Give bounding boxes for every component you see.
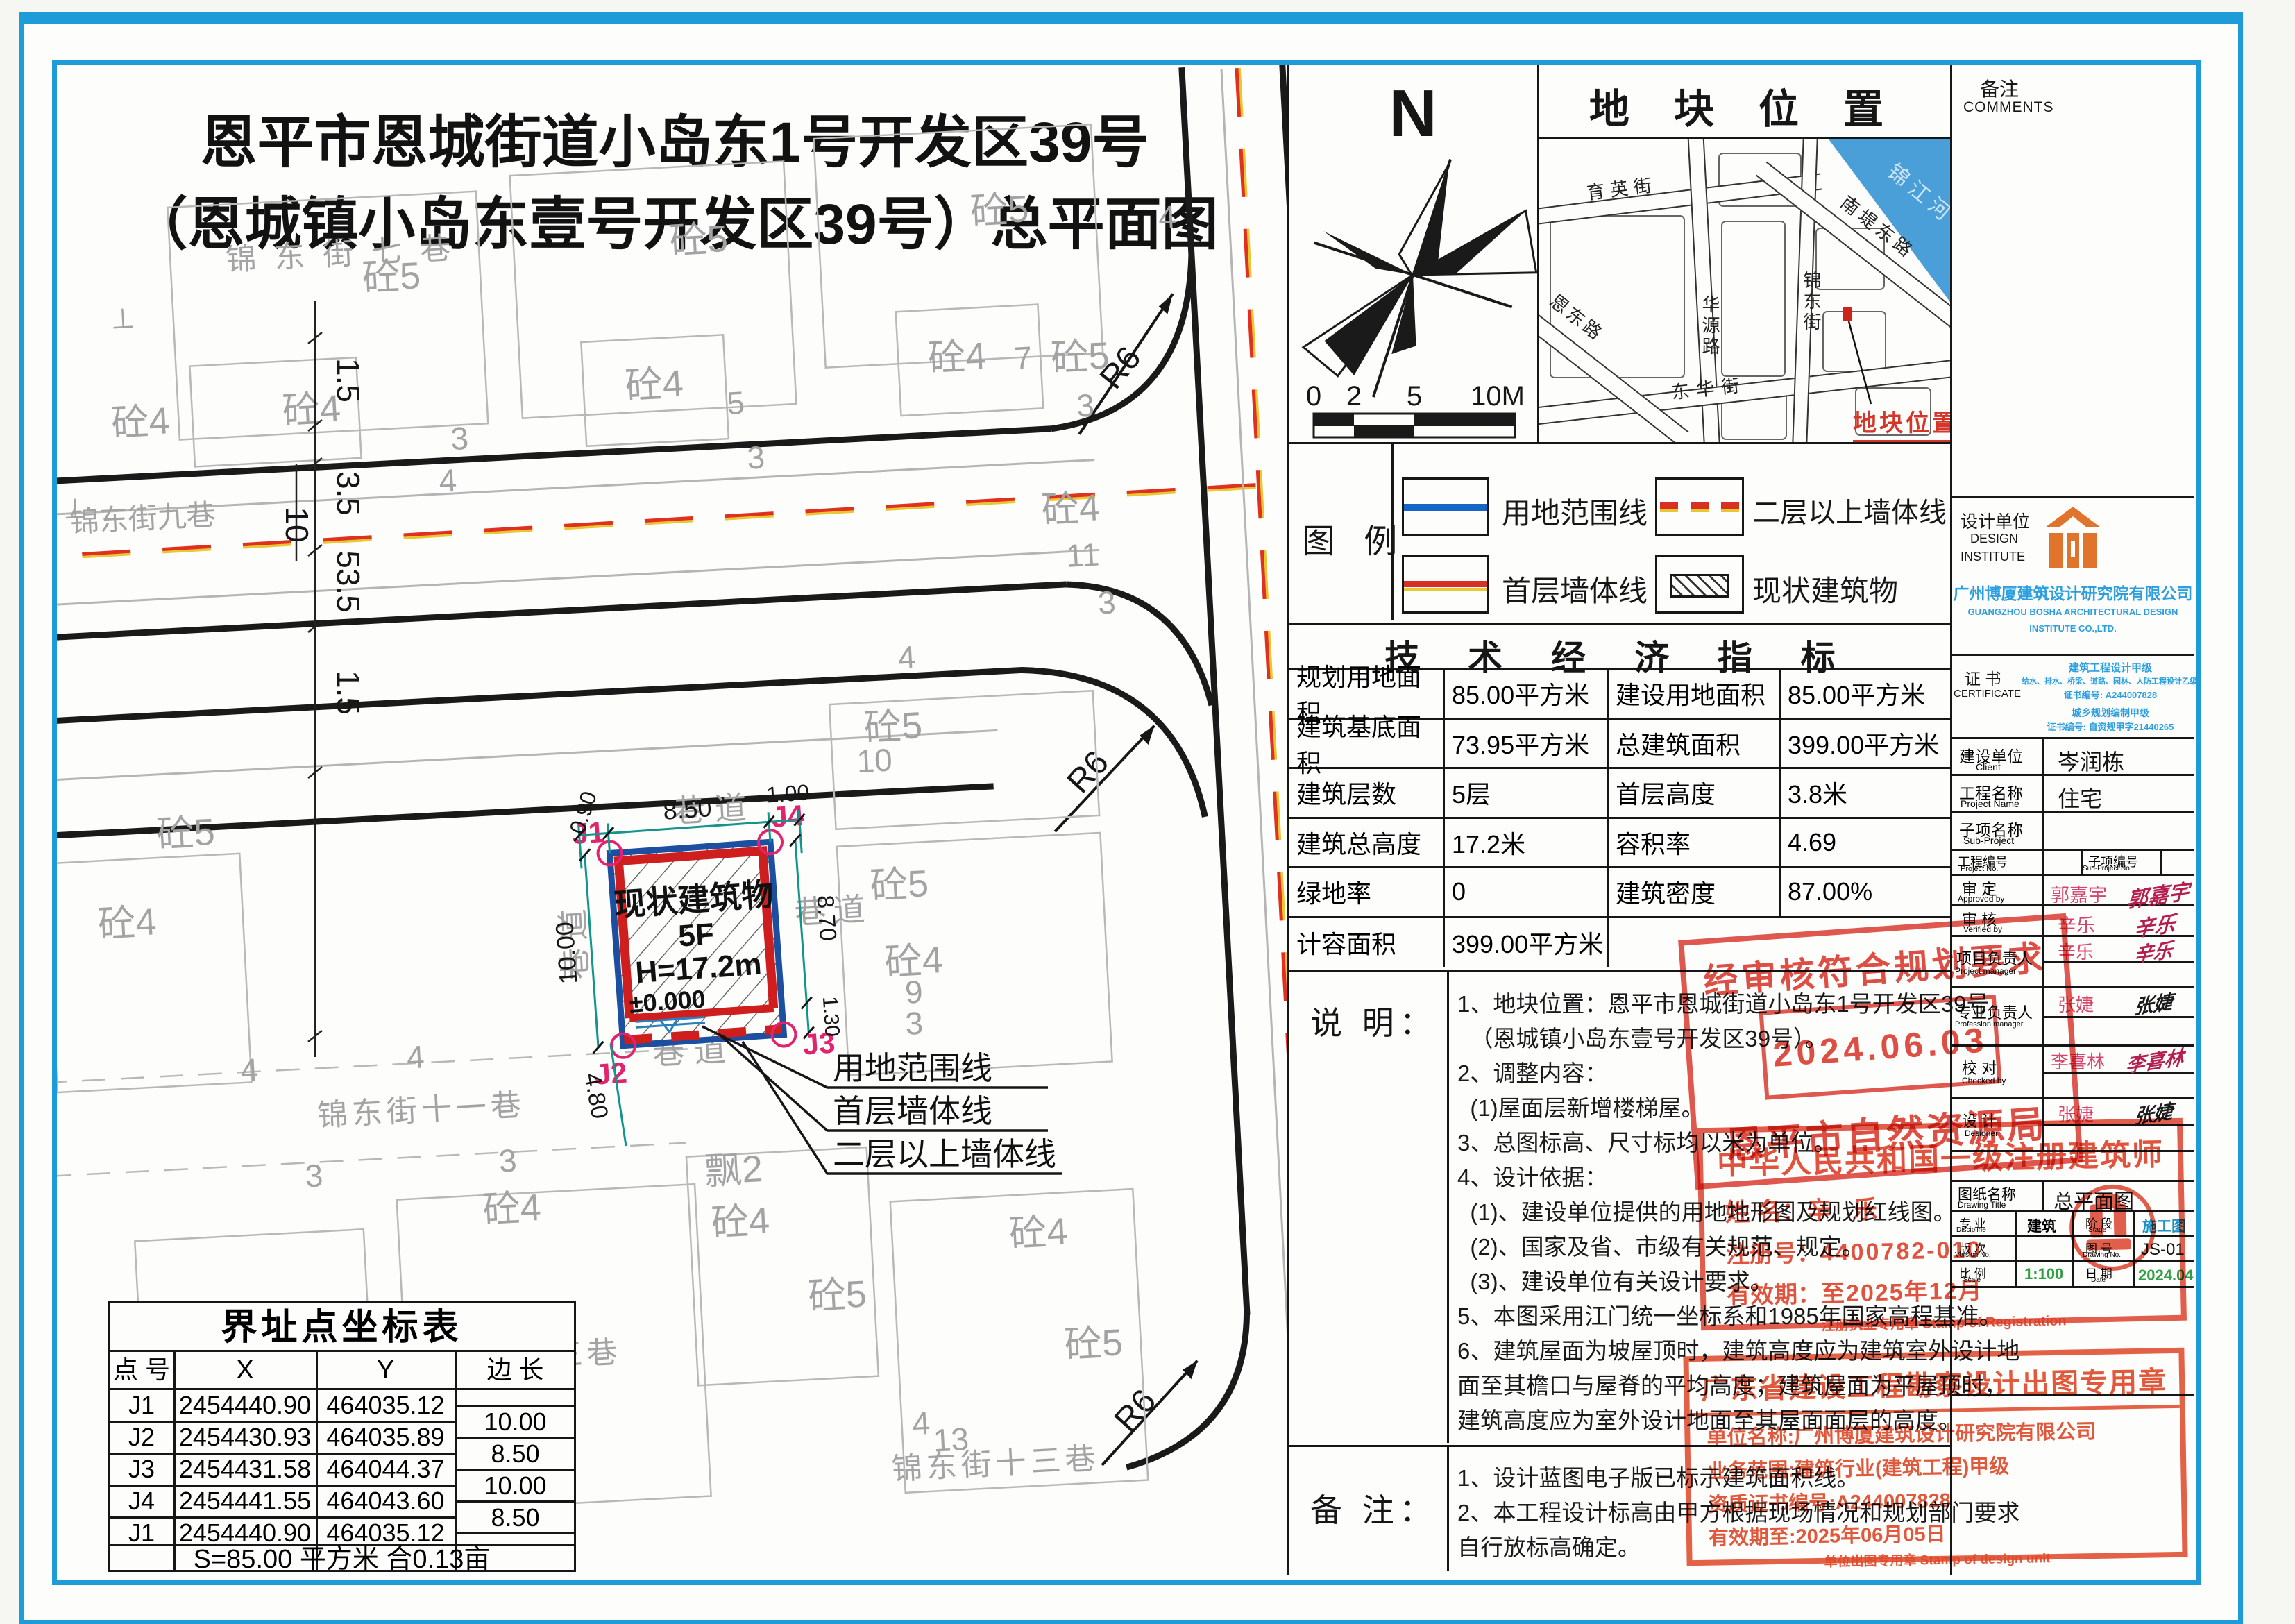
tech-value: 73.95平方米 — [1445, 720, 1609, 770]
architect-valid-label: 有效期： — [1727, 1281, 1822, 1310]
scale-10m: 10M — [1471, 381, 1525, 412]
edge-value: 8.50 — [457, 1503, 574, 1533]
remarks-label: 备 注： — [1310, 1485, 1437, 1531]
road-a-lane-line2 — [57, 550, 1099, 607]
svg-text:R6: R6 — [1108, 1382, 1163, 1439]
svg-text:砼5: 砼5 — [1050, 335, 1110, 379]
legend-title: 图 例 — [1302, 514, 1407, 562]
design-unit-cert-no: 资质证书编号:A244007828 — [1708, 1480, 2182, 1518]
tech-value: 85.00平方米 — [1445, 670, 1609, 720]
compass-map-divider — [1537, 65, 1539, 444]
svg-text:1.5: 1.5 — [330, 358, 366, 403]
tech-value: 5层 — [1445, 769, 1609, 819]
cell: J3 — [110, 1454, 173, 1485]
architect-stamp-title: 中华人民共和国一级注册建筑师 — [1702, 1129, 2178, 1183]
area-summary: S=85.00 平方米 合0.13亩 — [110, 1546, 574, 1573]
legend-section: 图 例 用地范围线 二层以上墙体线 首层墙体线 现状建筑物 — [1287, 444, 1952, 625]
sub-project-en: Sub-Project — [1963, 835, 2014, 846]
client-row: 建设单位 Client 岑润栋 — [1952, 739, 2194, 776]
svg-text:10.00: 10.00 — [550, 921, 582, 986]
r6-label-bottom: R6 — [1097, 1361, 1203, 1465]
tech-value: 4.69 — [1781, 819, 1950, 869]
edge-value: 10.00 — [457, 1471, 574, 1501]
svg-text:⊥: ⊥ — [62, 493, 88, 525]
design-institute-box: 设计单位 DESIGN INSTITUTE 广州博厦建筑设计研究院有限公司 GU… — [1952, 498, 2194, 656]
remarks-divider — [1447, 1447, 1449, 1571]
coordinate-table: 界址点坐标表 点 号 X Y 边 长 J1 2454440.90 464035.… — [108, 1301, 576, 1572]
yellow-dash-icon — [1660, 509, 1739, 512]
architect-stamp-valid-row: 有效期：至2025年12月 — [1727, 1267, 2181, 1311]
project-no-en: Project No. — [1961, 865, 1998, 873]
tech-label: 建筑层数 — [1289, 769, 1445, 819]
scale-0: 0 — [1306, 381, 1321, 412]
legend-label-upperwall: 二层以上墙体线 — [1752, 490, 1947, 530]
tech-label: 总建筑面积 — [1609, 720, 1781, 770]
cell: J1 — [110, 1390, 173, 1421]
tech-label: 建筑总高度 — [1289, 819, 1445, 869]
approved-en: Approved by — [1958, 894, 2004, 904]
legend-swatch-upperwall — [1655, 477, 1744, 536]
sub-no-en: Sub-Project No. — [2083, 865, 2132, 872]
cell: J4 — [110, 1486, 173, 1516]
location-map-title: 地 块 位 置 — [1539, 76, 1950, 135]
cert-line1: 建筑工程设计甲级 — [2027, 660, 2194, 675]
north-letter: N — [1389, 76, 1437, 151]
legend-swatch-boundary — [1402, 477, 1489, 536]
svg-text:10: 10 — [279, 507, 315, 542]
architect-name-label: 姓 名： — [1725, 1196, 1807, 1226]
comments-en: COMMENTS — [1963, 99, 2054, 116]
compass-panel: N 0 2 5 10M — [1289, 67, 1537, 442]
legend-label-firstfloor: 首层墙体线 — [1502, 568, 1648, 610]
col-header-x: X — [176, 1352, 314, 1388]
project-manager-signature: 辛乐 — [2133, 935, 2174, 969]
yellow-line-icon — [1404, 588, 1487, 591]
svg-text:4: 4 — [438, 462, 457, 499]
street-11: 锦东街十一巷 — [316, 1088, 526, 1133]
road-v-lane-line — [1221, 69, 1287, 1493]
svg-text:1.30: 1.30 — [818, 995, 844, 1038]
curve-a-south — [1067, 577, 1212, 712]
svg-text:砼4: 砼4 — [927, 335, 988, 380]
svg-text:1.5: 1.5 — [330, 670, 366, 715]
company-name-en2: INSTITUTE CO.,LTD. — [1952, 623, 2194, 634]
sub-project-row: 子项名称 Sub-Project — [1952, 813, 2194, 851]
architect-registration-stamp: 中华人民共和国一级注册建筑师 姓 名：辛 乐 注册号：4400782-010 有… — [1697, 1118, 2187, 1331]
legend-swatch-existing — [1655, 555, 1744, 614]
hatch-icon — [1670, 574, 1729, 598]
tech-label: 绿地率 — [1289, 868, 1445, 918]
architect-reg-no: 4400782-010 — [1820, 1237, 1982, 1267]
curve-r6-mid — [1022, 661, 1205, 826]
comments-zh: 备注 — [1980, 74, 2019, 102]
svg-text:砼4: 砼4 — [624, 362, 684, 407]
svg-text:4: 4 — [239, 1051, 259, 1088]
street-13b: 锦东街十三巷 — [891, 1441, 1101, 1487]
r6-label-mid: R6 — [1050, 726, 1160, 832]
cert-line5: 证书编号: 自资规甲字21440265 — [2027, 720, 2194, 733]
road-a-north-edge — [57, 429, 1051, 484]
svg-text:13: 13 — [932, 1421, 969, 1459]
scale-2: 2 — [1346, 381, 1362, 412]
svg-text:8.70: 8.70 — [812, 895, 842, 942]
svg-text:砼4: 砼4 — [1008, 1210, 1069, 1255]
tech-label: 建筑基底面积 — [1289, 720, 1445, 770]
svg-text:飘2: 飘2 — [704, 1148, 764, 1192]
svg-text:砼4: 砼4 — [1040, 487, 1101, 531]
project-name-value: 住宅 — [2058, 781, 2102, 813]
svg-text:11: 11 — [1065, 536, 1100, 573]
coordinate-table-title: 界址点坐标表 — [110, 1303, 574, 1352]
svg-text:3.5: 3.5 — [330, 471, 366, 516]
col-header-pointno: 点 号 — [110, 1352, 173, 1388]
svg-text:3: 3 — [746, 439, 765, 475]
design-institute-en2: INSTITUTE — [1961, 550, 2025, 564]
svg-text:3: 3 — [304, 1157, 323, 1194]
tech-label: 首层高度 — [1609, 769, 1781, 819]
design-institute-zh: 设计单位 — [1961, 508, 2030, 533]
svg-text:1.00: 1.00 — [765, 779, 811, 807]
svg-text:3: 3 — [1076, 387, 1095, 424]
certificate-box: 证 书 CERTIFICATE 建筑工程设计甲级 给水、排水、桥梁、道路、园林、… — [1952, 656, 2194, 739]
project-name-en: Project Name — [1961, 798, 2019, 809]
svg-text:3: 3 — [498, 1142, 518, 1179]
design-institute-en1: DESIGN — [1970, 532, 2018, 546]
svg-text:砼4: 砼4 — [97, 901, 158, 945]
tech-value: 3.8米 — [1781, 769, 1950, 819]
building-level: ±0.000 — [628, 984, 706, 1018]
legend-label-existing: 现状建筑物 — [1752, 568, 1898, 610]
building-floors: 5F — [677, 917, 715, 953]
svg-text:砼5: 砼5 — [807, 1273, 867, 1317]
cert-line4: 城乡规划编制甲级 — [2027, 706, 2194, 720]
design-unit-scope: 业务范围:建筑行业(建筑工程)甲级 — [1707, 1447, 2181, 1485]
svg-text:3: 3 — [904, 1005, 924, 1042]
leader-label-firstfloor: 首层墙体线 — [833, 1093, 992, 1129]
svg-text:3: 3 — [1097, 584, 1117, 620]
svg-text:4: 4 — [897, 638, 916, 675]
tech-value: 87.00% — [1781, 868, 1950, 918]
svg-text:砼5: 砼5 — [969, 188, 1030, 232]
planning-stamp-title: 经审核符合规划要求 — [1685, 929, 2065, 1005]
notes-divider — [1447, 972, 1449, 1443]
certificate-zh: 证 书 — [1965, 666, 2001, 689]
design-unit-stamp: 广东省建设工程勘察设计出图专用章 单位名称:广州博厦建筑设计研究院有限公司 业务… — [1683, 1348, 2187, 1566]
svg-text:R6: R6 — [1060, 744, 1116, 800]
road-a-south-edge — [57, 584, 1067, 640]
edge-length-column: 10.00 8.50 10.00 8.50 — [457, 1390, 574, 1544]
architect-reg-label: 注册号： — [1725, 1240, 1820, 1269]
svg-text:砼5: 砼5 — [1063, 1321, 1124, 1366]
cell: 464044.37 — [318, 1454, 453, 1485]
certificate-en: CERTIFICATE — [1954, 688, 2021, 700]
tech-value: 17.2米 — [1445, 819, 1609, 869]
design-unit-stamp-title: 广东省建设工程勘察设计出图专用章 — [1689, 1353, 2180, 1416]
comments-box: 备注 COMMENTS — [1952, 65, 2194, 498]
plan-title-line1: 恩平市恩城街道小岛东1号开发区39号 — [201, 111, 1149, 174]
cell: 464035.89 — [318, 1422, 453, 1453]
svg-text:53.5: 53.5 — [330, 550, 366, 613]
planning-stamp-date: 2024.06.03 — [1759, 995, 2002, 1100]
col-header-edge: 边 长 — [457, 1352, 574, 1388]
approved-name: 郭嘉宇 — [2051, 880, 2107, 907]
cell: 2454431.58 — [176, 1454, 314, 1485]
tech-value: 399.00平方米 — [1445, 918, 1609, 968]
svg-text:砼5: 砼5 — [869, 863, 929, 907]
svg-text:4: 4 — [1158, 198, 1177, 235]
tech-value: 399.00平方米 — [1781, 720, 1950, 770]
svg-text:8.50: 8.50 — [662, 793, 713, 825]
cert-line3: 证书编号: A244007828 — [2027, 688, 2194, 701]
tech-table: 规划用地面积 85.00平方米 建设用地面积 85.00平方米 建筑基底面积 7… — [1287, 670, 1952, 972]
blue-line-icon — [1404, 504, 1487, 511]
coord-rows: J1 2454440.90 464035.12 J2 2454430.93 46… — [110, 1390, 455, 1544]
svg-text:砼5: 砼5 — [155, 811, 216, 856]
svg-text:4: 4 — [406, 1038, 425, 1075]
leader-label-upperwall: 二层以上墙体线 — [833, 1136, 1056, 1172]
tech-label: 建设用地面积 — [1609, 670, 1781, 720]
project-name-row: 工程名称 Project Name 住宅 — [1952, 776, 2194, 813]
notes-label: 说 明： — [1310, 998, 1437, 1044]
tech-label: 容积率 — [1609, 819, 1781, 869]
svg-text:砼5: 砼5 — [362, 255, 422, 299]
leader-label-boundary: 用地范围线 — [833, 1050, 992, 1086]
tech-value: 0 — [1445, 868, 1609, 918]
company-name-zh: 广州博厦建筑设计研究院有限公司 — [1952, 580, 2194, 604]
client-value: 岑润栋 — [2058, 745, 2124, 777]
location-map: 锦江河 育英街 华源路 恩东路 东华街 锦东街 南堤东路 地块位置 — [1539, 139, 1950, 442]
svg-text:砼5: 砼5 — [668, 218, 729, 262]
project-no-row: 工程编号 Project No. 子项编号 Sub-Project No. — [1952, 851, 2194, 876]
design-unit-name: 单位名称:广州博厦建筑设计研究院有限公司 — [1707, 1414, 2180, 1451]
scale-bar: 0 2 5 10M — [1306, 381, 1525, 437]
svg-text:10: 10 — [856, 741, 893, 779]
approved-row: 审 定 Approved by 郭嘉宇 郭嘉宇 — [1952, 876, 2194, 906]
profession-manager-signature: 张婕 — [2133, 987, 2174, 1021]
cell: 464035.12 — [318, 1390, 453, 1421]
cell: 2454441.55 — [176, 1486, 314, 1516]
svg-text:砼4: 砼4 — [710, 1200, 770, 1244]
svg-text:⊥: ⊥ — [110, 303, 136, 335]
company-name-en1: GUANGZHOU BOSHA ARCHITECTURAL DESIGN — [1952, 607, 2194, 617]
edge-value: 8.50 — [457, 1439, 574, 1469]
red-dash-icon — [1660, 502, 1739, 509]
edge-value: 10.00 — [457, 1407, 574, 1437]
cell: 2454440.90 — [176, 1390, 314, 1421]
design-unit-valid: 有效期至:2025年06月05日 — [1709, 1514, 2183, 1551]
red-line-icon — [1404, 581, 1487, 587]
svg-text:4: 4 — [911, 1405, 931, 1441]
cell: 464043.60 — [318, 1486, 453, 1516]
legend-label-boundary: 用地范围线 — [1502, 490, 1648, 532]
tech-label: 计容面积 — [1289, 918, 1445, 968]
legend-swatch-firstfloor — [1402, 555, 1489, 614]
col-header-y: Y — [318, 1352, 453, 1388]
svg-text:砼4: 砼4 — [110, 400, 171, 444]
map-marker-label: 地块位置 — [1853, 404, 1950, 442]
tech-label: 建筑密度 — [1609, 868, 1781, 918]
architect-valid: 至2025年12月 — [1821, 1278, 1983, 1308]
cell: 2454430.93 — [176, 1422, 314, 1453]
tech-value: 85.00平方米 — [1781, 670, 1950, 720]
scale-5: 5 — [1407, 381, 1422, 412]
svg-text:7: 7 — [1013, 339, 1033, 376]
map-leader-overlay — [1539, 139, 1950, 442]
cell: J2 — [110, 1422, 173, 1453]
svg-text:3: 3 — [450, 420, 469, 457]
title-block-column: 备注 COMMENTS 设计单位 DESIGN INSTITUTE 广州博厦建筑… — [1950, 65, 2192, 1571]
street-9: 锦东街九巷 — [69, 498, 217, 539]
company-logo-icon — [2044, 505, 2102, 570]
client-en: Client — [1976, 761, 2001, 772]
cert-line2: 给水、排水、桥梁、道路、园林、人防工程设计乙级 — [2022, 675, 2194, 686]
svg-text:5: 5 — [726, 384, 745, 421]
svg-text:砼4: 砼4 — [482, 1187, 542, 1231]
architect-name: 辛 乐 — [1806, 1195, 1885, 1225]
